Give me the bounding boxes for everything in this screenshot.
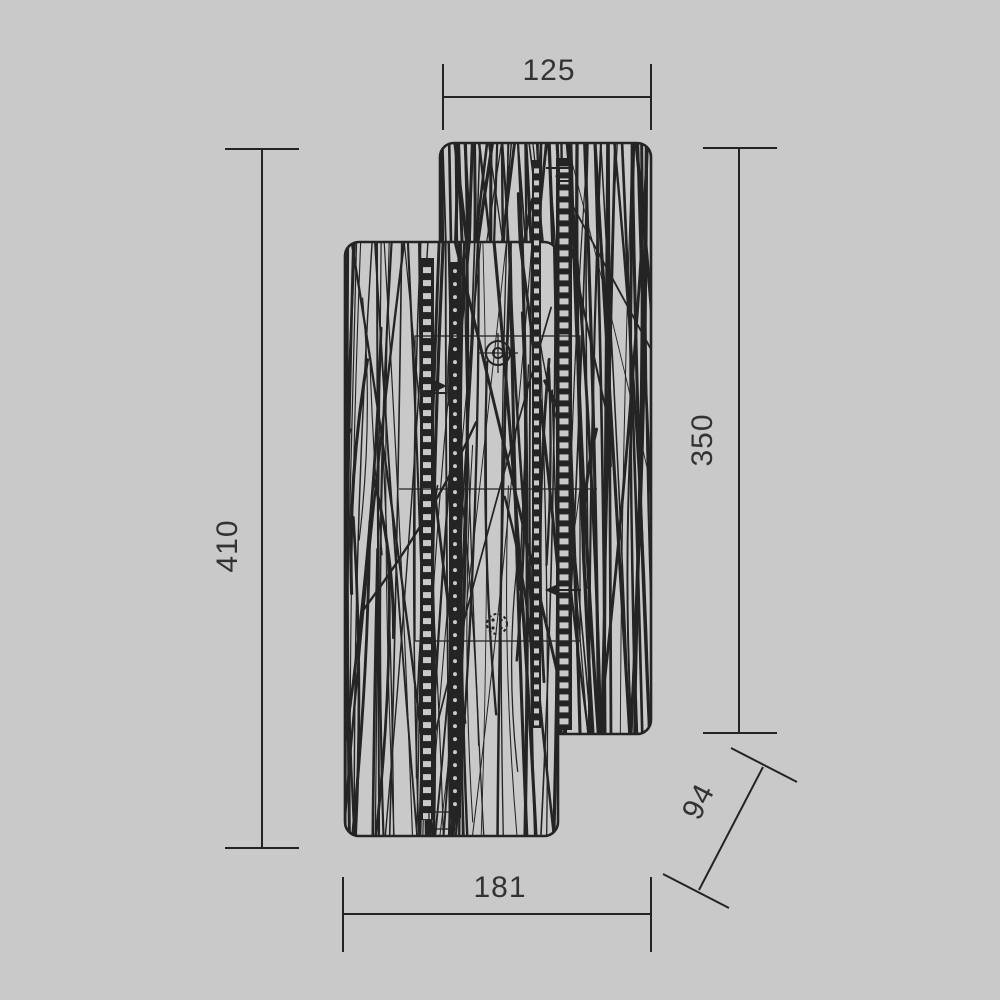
dimension-left-height: 410 [211,149,299,848]
wall-lamp-technical-drawing: 125 350 410 181 94 [0,0,1000,1000]
dimension-diagonal-depth: 94 [663,748,797,908]
dimension-label-top: 125 [522,54,575,87]
dimension-right-height: 350 [686,148,777,733]
dimension-label-bottom: 181 [473,871,526,904]
dimension-label-left: 410 [211,519,244,572]
dimension-bottom-width: 181 [343,871,651,952]
dimension-label-diagonal: 94 [676,778,722,825]
dimension-label-right: 350 [686,413,719,466]
drawing-canvas: 125 350 410 181 94 [0,0,1000,1000]
dimension-top-width: 125 [443,54,651,130]
